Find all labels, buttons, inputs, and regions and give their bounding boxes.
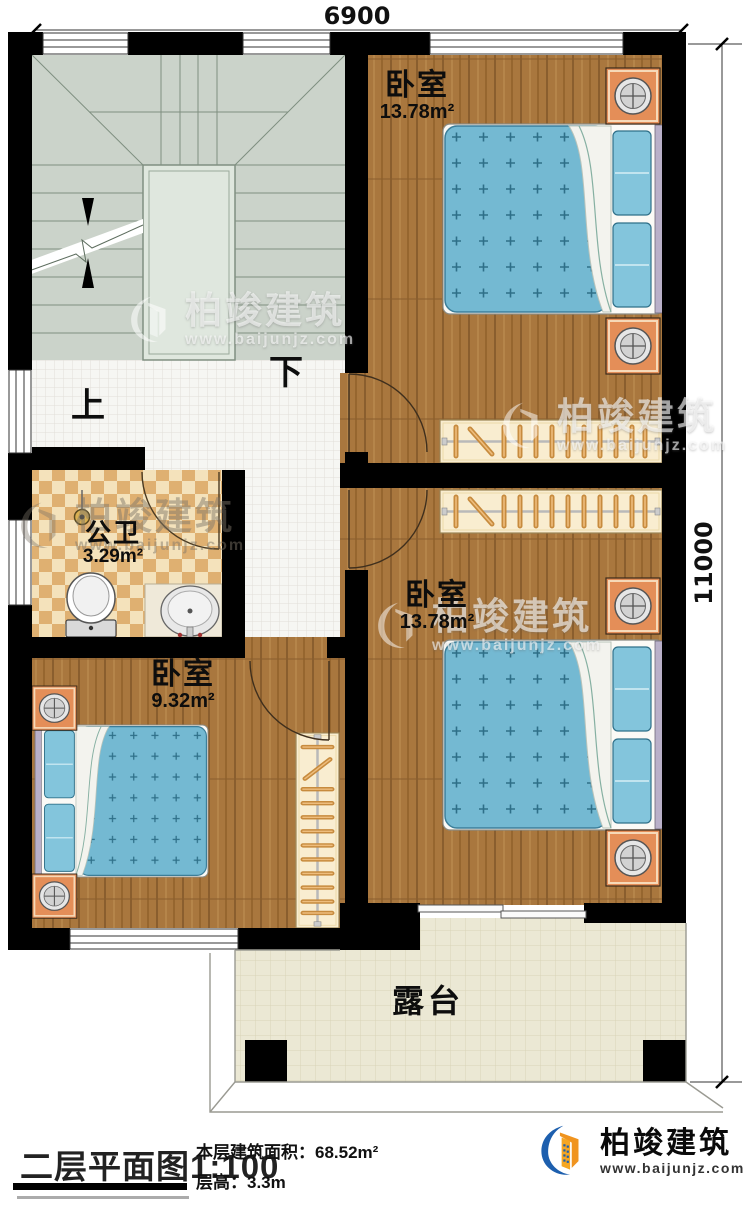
room-area: 13.78m²	[400, 612, 475, 633]
floor-height-line: 层高：3.3m	[196, 1168, 286, 1193]
window-icon	[70, 929, 238, 949]
floor-plan-drawing	[0, 0, 750, 1207]
stair-down-label: 下	[269, 345, 303, 394]
room-name: 卧室	[400, 580, 475, 612]
nightstand-lamp-icon	[32, 686, 77, 730]
bed	[443, 640, 663, 830]
floor-area-label: 本层建筑面积：	[196, 1143, 315, 1162]
wardrobe-hangers-icon	[440, 490, 662, 533]
nightstand-lamp-icon	[606, 318, 660, 374]
bed	[35, 725, 208, 877]
brand-block: 柏竣建筑 www.baijunjz.com	[538, 1122, 745, 1180]
room-name: 卧室	[380, 70, 455, 102]
room-label-bedroom-tr: 卧室 13.78m²	[380, 70, 455, 123]
dimension-right-value: 11000	[690, 518, 718, 608]
floor-plan-page: 柏竣建筑 www.baijunjz.com 柏竣建筑 www.baijunjz.…	[0, 0, 750, 1207]
sliding-door	[418, 905, 586, 918]
room-area: 3.29m²	[83, 547, 143, 567]
room-name: 卧室	[151, 659, 215, 691]
room-label-bedroom-bl: 卧室 9.32m²	[151, 659, 215, 712]
window-icon	[430, 33, 623, 54]
floor-height-value: 3.3m	[247, 1173, 286, 1192]
nightstand-lamp-icon	[32, 874, 77, 918]
room-name: 露台	[392, 985, 464, 1019]
room-area: 13.78m²	[380, 102, 455, 123]
stair-up-label: 上	[71, 378, 105, 427]
window-icon	[9, 520, 31, 605]
toilet-icon	[66, 573, 116, 637]
plan-title-text: 二层平面图	[20, 1148, 190, 1185]
floor-area-value: 68.52m²	[315, 1143, 378, 1162]
room-label-bedroom-mr: 卧室 13.78m²	[400, 580, 475, 633]
title-underline-shadow	[17, 1196, 189, 1199]
room-name: 公卫	[83, 520, 143, 547]
floor-area-line: 本层建筑面积：68.52m²	[196, 1138, 378, 1163]
brand-logo-icon	[538, 1122, 592, 1180]
wardrobe-hangers-icon	[440, 420, 662, 463]
nightstand-lamp-icon	[606, 830, 660, 886]
wardrobe-hangers-icon	[296, 733, 339, 928]
nightstand-lamp-icon	[606, 68, 660, 124]
window-icon	[243, 33, 330, 54]
floor-height-label: 层高：	[196, 1173, 247, 1192]
room-label-terrace: 露台	[392, 985, 464, 1019]
title-underline	[13, 1183, 187, 1190]
room-area: 9.32m²	[151, 691, 215, 712]
room-label-bathroom: 公卫 3.29m²	[83, 520, 143, 567]
window-icon	[43, 33, 128, 54]
bed	[443, 124, 663, 314]
sink-icon	[161, 586, 219, 637]
window-icon	[9, 370, 31, 453]
nightstand-lamp-icon	[606, 578, 660, 634]
brand-name: 柏竣建筑	[600, 1127, 745, 1160]
brand-url: www.baijunjz.com	[600, 1160, 745, 1176]
dimension-top-value: 6900	[317, 2, 397, 30]
